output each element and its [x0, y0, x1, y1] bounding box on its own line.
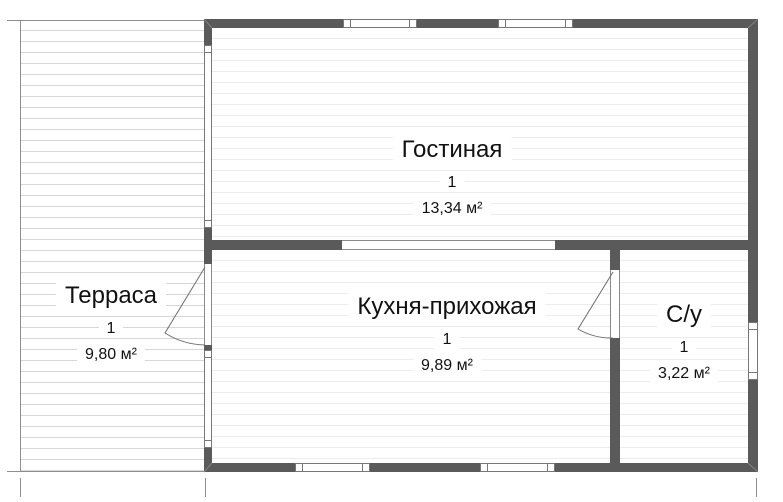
room-number: 1	[99, 319, 124, 339]
terrace-edge-left	[20, 20, 21, 471]
window-living-left	[204, 45, 212, 228]
window-bathroom-right	[748, 322, 758, 380]
room-name: С/у	[657, 300, 711, 330]
label-terrace: Терраса 1 9,80 м²	[56, 281, 166, 365]
room-terrace-floor	[21, 20, 205, 471]
room-number: 1	[672, 338, 697, 358]
door-opening-bathroom	[610, 270, 620, 338]
window-kitchen-bottom-right	[480, 463, 555, 472]
label-bathroom: С/у 1 3,22 м²	[650, 300, 718, 384]
label-living-room: Гостиная 1 13,34 м²	[393, 135, 512, 219]
terrace-edge-bottom	[7, 471, 205, 472]
room-number: 1	[435, 330, 460, 350]
room-area: 13,34 м²	[414, 199, 491, 219]
room-name: Терраса	[56, 281, 166, 311]
dimension-tick-middle	[205, 478, 206, 497]
room-name: Гостиная	[393, 135, 512, 165]
window-kitchen-left	[204, 350, 212, 448]
floor-plan: Терраса 1 9,80 м² Гостиная 1 13,34 м² Ку…	[0, 0, 783, 502]
room-number: 1	[440, 173, 465, 193]
passage-opening	[342, 240, 555, 250]
wall-exterior-top	[205, 19, 758, 28]
room-area: 9,80 м²	[77, 345, 145, 365]
room-area: 9,89 м²	[413, 356, 481, 376]
window-living-top-right	[498, 19, 573, 28]
label-kitchen-hall: Кухня-прихожая 1 9,89 м²	[348, 292, 545, 376]
door-opening-terrace	[204, 264, 212, 345]
room-name: Кухня-прихожая	[348, 292, 545, 322]
window-living-top-left	[343, 19, 417, 28]
dimension-tick-right	[756, 478, 757, 497]
terrace-edge-top	[7, 20, 205, 21]
window-kitchen-bottom-left	[295, 463, 370, 472]
dimension-tick-left	[20, 478, 21, 497]
room-area: 3,22 м²	[650, 364, 718, 384]
